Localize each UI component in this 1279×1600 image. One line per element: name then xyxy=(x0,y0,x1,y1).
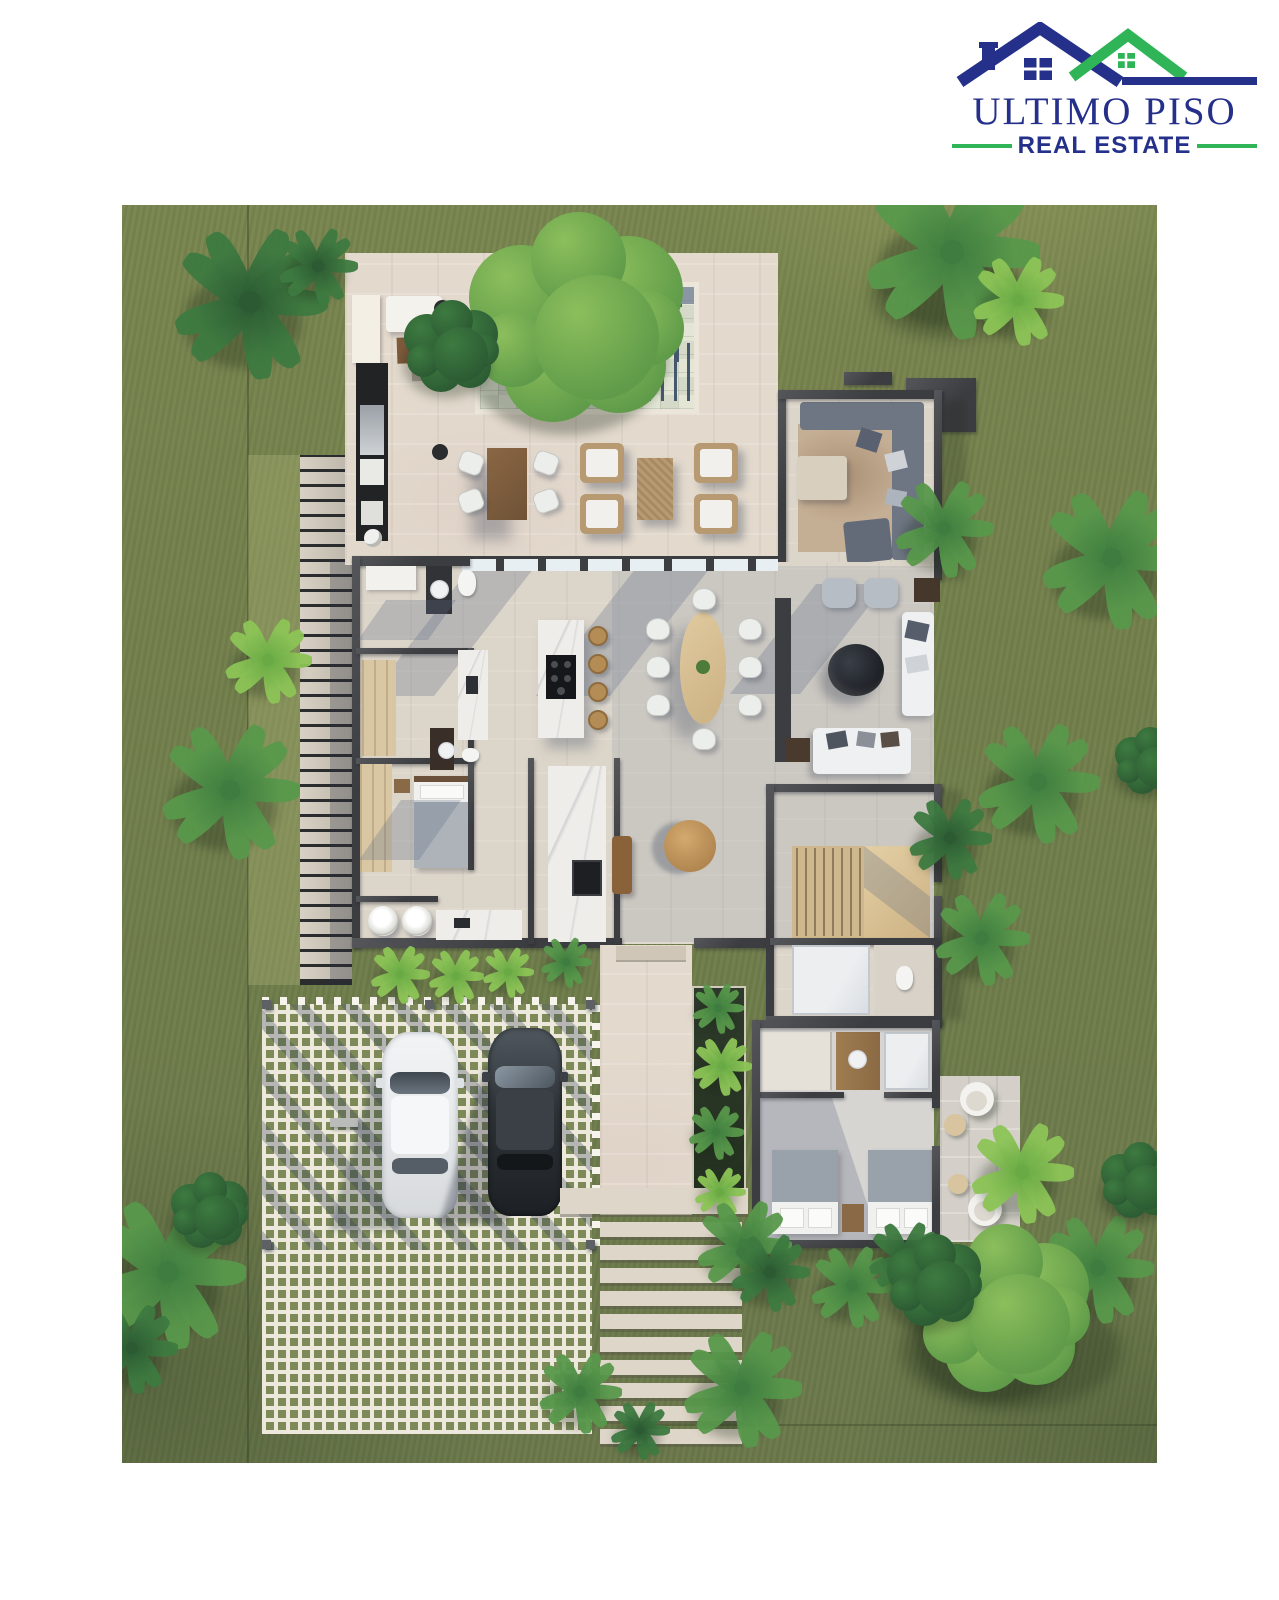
foliage-blob xyxy=(1160,752,1184,776)
tagline-rule-left xyxy=(952,144,1012,148)
dining-chair xyxy=(646,618,670,640)
bar-stool xyxy=(588,682,608,702)
dining-chair xyxy=(738,618,762,640)
logo-baseline-bar xyxy=(1122,77,1257,85)
brand-logo: ULTIMO PISO REAL ESTATE xyxy=(952,22,1257,154)
dining-chair xyxy=(646,656,670,678)
dining-chair xyxy=(692,728,716,750)
bar-stool xyxy=(588,626,608,646)
terrace-dining-chair xyxy=(456,487,486,516)
dining-chair xyxy=(738,694,762,716)
page: ULTIMO PISO REAL ESTATE xyxy=(0,0,1279,1600)
terrace-dining-chair xyxy=(531,487,561,516)
brand-name: ULTIMO PISO xyxy=(952,89,1257,134)
floorplan-render xyxy=(0,0,1279,1600)
bar-stool xyxy=(588,710,608,730)
logo-chimney-cap xyxy=(979,42,998,48)
dining-chair xyxy=(646,694,670,716)
terrace-dining-chair xyxy=(456,449,486,478)
terrace-dining-chair xyxy=(531,449,561,478)
seating-layer xyxy=(0,0,1279,1600)
brand-tagline: REAL ESTATE xyxy=(952,132,1257,160)
dining-chair xyxy=(692,588,716,610)
tagline-rule-right xyxy=(1197,144,1257,148)
logo-houses-icon xyxy=(952,22,1257,88)
bar-stool xyxy=(588,654,608,674)
brand-tagline-text: REAL ESTATE xyxy=(1018,132,1192,160)
dining-chair xyxy=(738,656,762,678)
